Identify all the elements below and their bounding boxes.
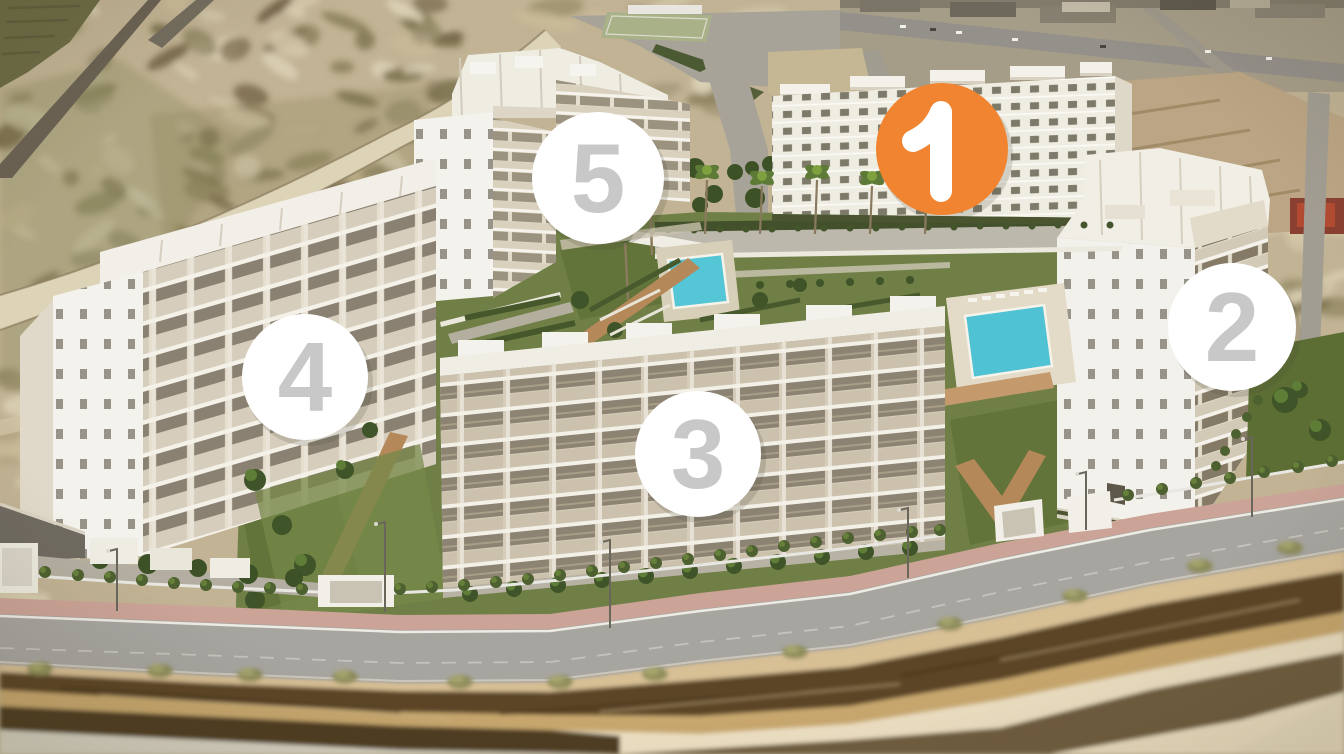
svg-text:4: 4	[278, 322, 333, 432]
svg-text:5: 5	[571, 123, 626, 233]
svg-text:2: 2	[1205, 272, 1260, 382]
svg-text:3: 3	[671, 399, 726, 509]
